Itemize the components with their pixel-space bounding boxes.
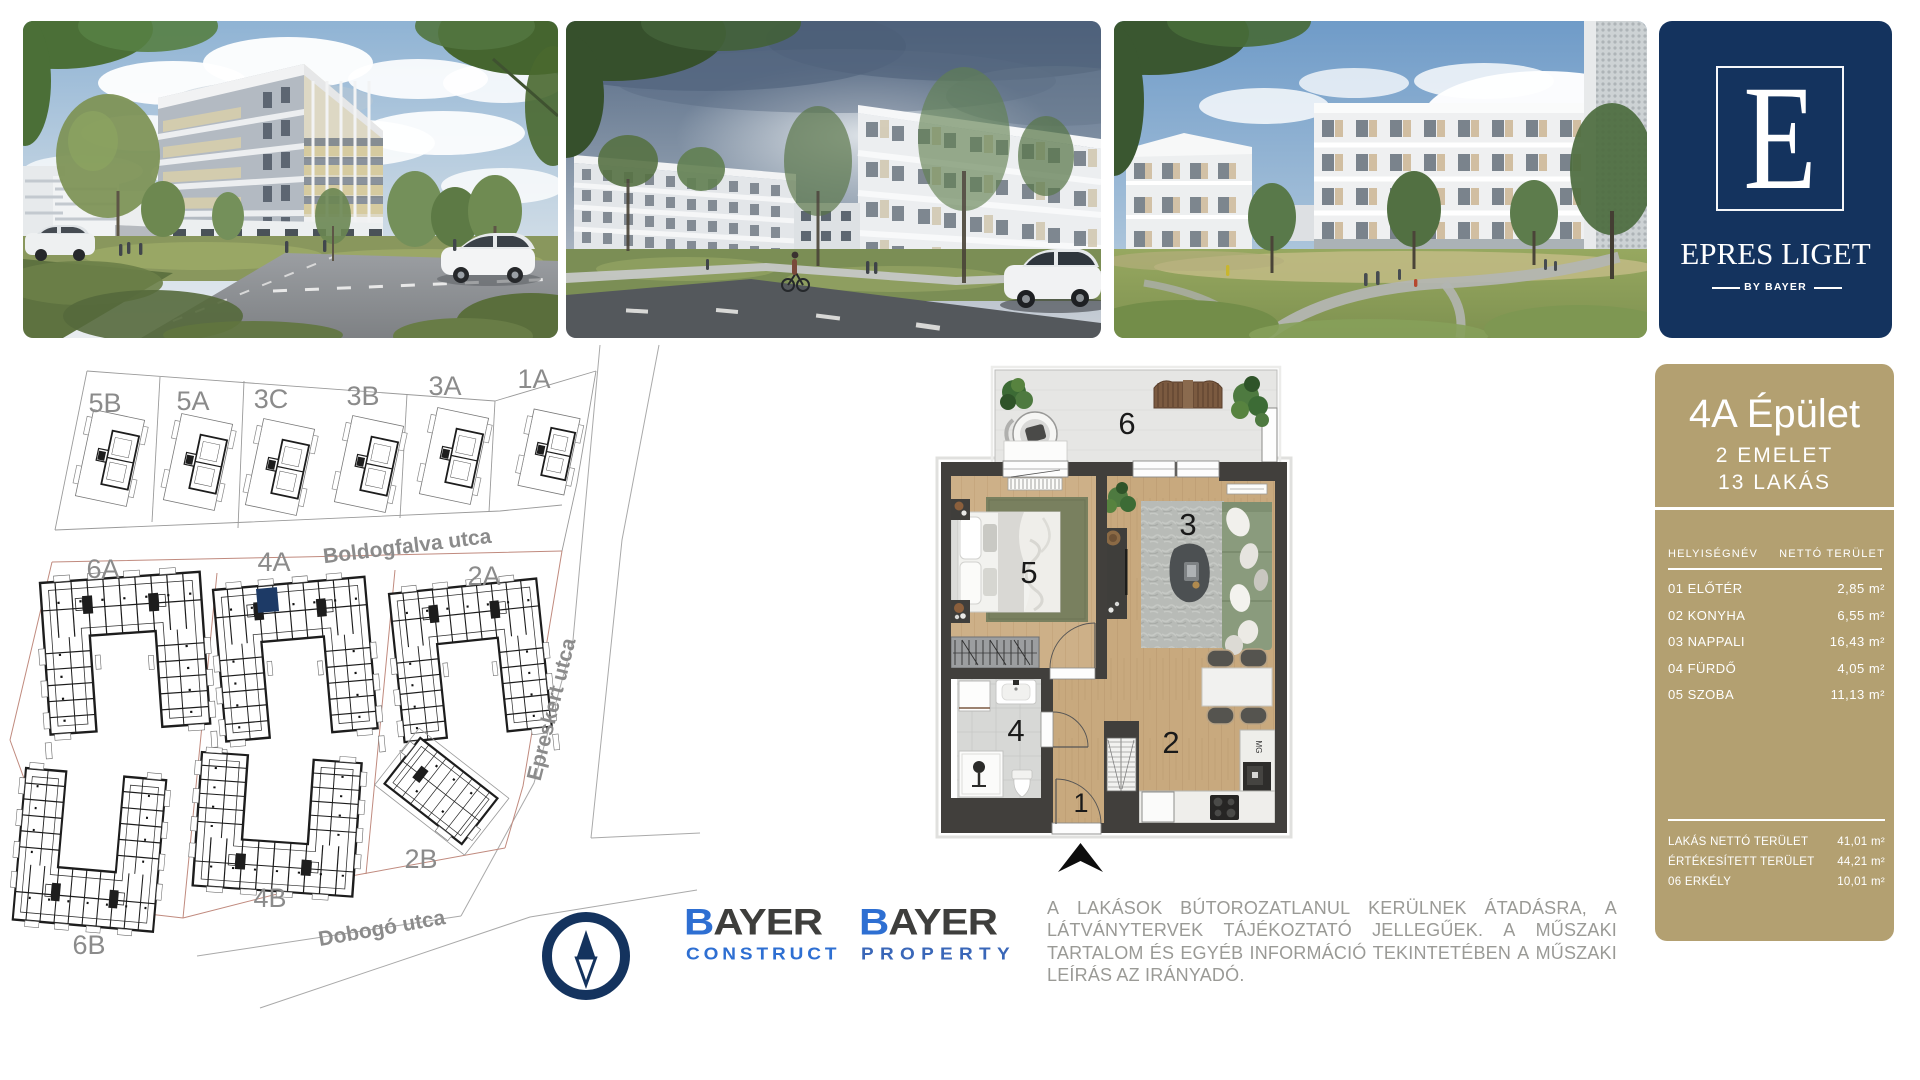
svg-text:2: 2 xyxy=(1162,725,1179,760)
svg-text:5A: 5A xyxy=(176,386,209,416)
svg-text:3: 3 xyxy=(1179,507,1196,542)
svg-text:4: 4 xyxy=(1007,713,1024,748)
svg-text:6A: 6A xyxy=(86,554,119,584)
svg-text:6B: 6B xyxy=(72,930,105,960)
svg-text:4B: 4B xyxy=(253,883,286,913)
svg-text:3B: 3B xyxy=(346,381,379,411)
svg-text:Dobogó utca: Dobogó utca xyxy=(317,906,448,951)
svg-text:4A: 4A xyxy=(257,547,290,577)
svg-text:2A: 2A xyxy=(467,561,500,591)
svg-text:5: 5 xyxy=(1020,555,1037,590)
svg-text:1: 1 xyxy=(1073,788,1088,818)
svg-text:5B: 5B xyxy=(88,388,121,418)
svg-text:1A: 1A xyxy=(517,364,550,394)
svg-text:MG: MG xyxy=(1254,741,1263,754)
svg-text:3A: 3A xyxy=(428,371,461,401)
svg-text:2B: 2B xyxy=(404,844,437,874)
svg-text:3C: 3C xyxy=(254,384,289,414)
svg-text:6: 6 xyxy=(1118,406,1135,441)
